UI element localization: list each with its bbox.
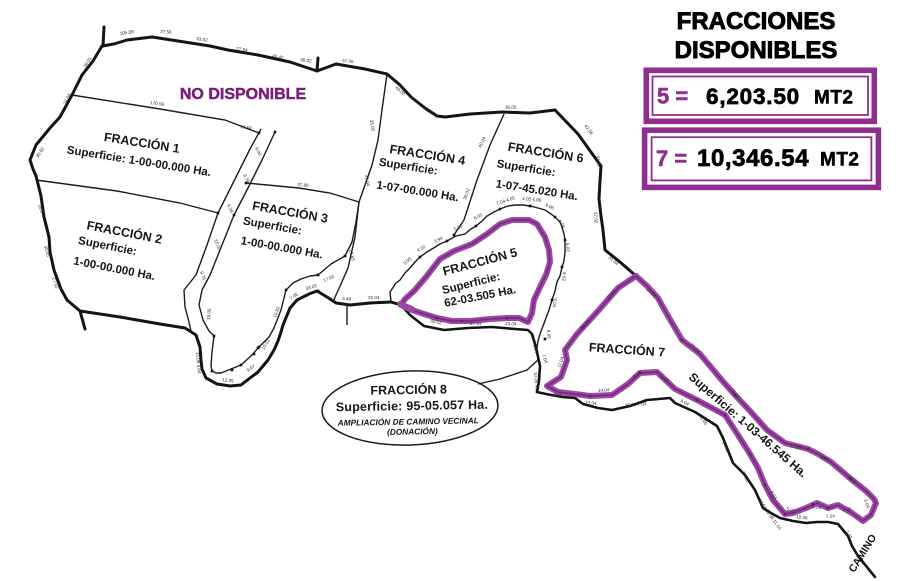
svg-text:18.05: 18.05 — [206, 308, 212, 320]
svg-text:MT2: MT2 — [820, 150, 860, 171]
svg-text:FRACCIÓN 8: FRACCIÓN 8 — [370, 381, 447, 397]
svg-text:27.84: 27.84 — [470, 321, 482, 326]
svg-text:23.04: 23.04 — [505, 321, 517, 326]
svg-text:6,203.50: 6,203.50 — [706, 84, 800, 109]
svg-text:8.05: 8.05 — [546, 330, 552, 340]
svg-text:37.89: 37.89 — [297, 182, 309, 188]
svg-text:27.56: 27.56 — [160, 29, 172, 35]
svg-text:DISPONIBLES: DISPONIBLES — [675, 37, 838, 64]
svg-text:36.05: 36.05 — [505, 105, 517, 110]
svg-text:7 =: 7 = — [656, 146, 687, 171]
svg-text:(DONACIÓN): (DONACIÓN) — [387, 425, 438, 437]
svg-text:5 =: 5 = — [657, 84, 688, 109]
svg-text:NO DISPONIBLE: NO DISPONIBLE — [180, 86, 307, 103]
svg-text:7.04: 7.04 — [826, 513, 836, 519]
svg-text:14.04: 14.04 — [598, 387, 610, 393]
svg-text:9.02: 9.02 — [565, 243, 571, 253]
svg-text:MT2: MT2 — [814, 88, 854, 109]
svg-text:5.48: 5.48 — [342, 296, 352, 302]
svg-text:23.04: 23.04 — [585, 400, 597, 406]
svg-text:32.04: 32.04 — [368, 295, 380, 300]
svg-text:37.02: 37.02 — [593, 212, 599, 224]
svg-text:Superficie: 95-05.057 Ha.: Superficie: 95-05.057 Ha. — [336, 398, 489, 415]
svg-text:10,346.54: 10,346.54 — [697, 145, 809, 172]
svg-text:8.62: 8.62 — [561, 272, 567, 282]
svg-text:FRACCIONES: FRACCIONES — [677, 8, 836, 35]
